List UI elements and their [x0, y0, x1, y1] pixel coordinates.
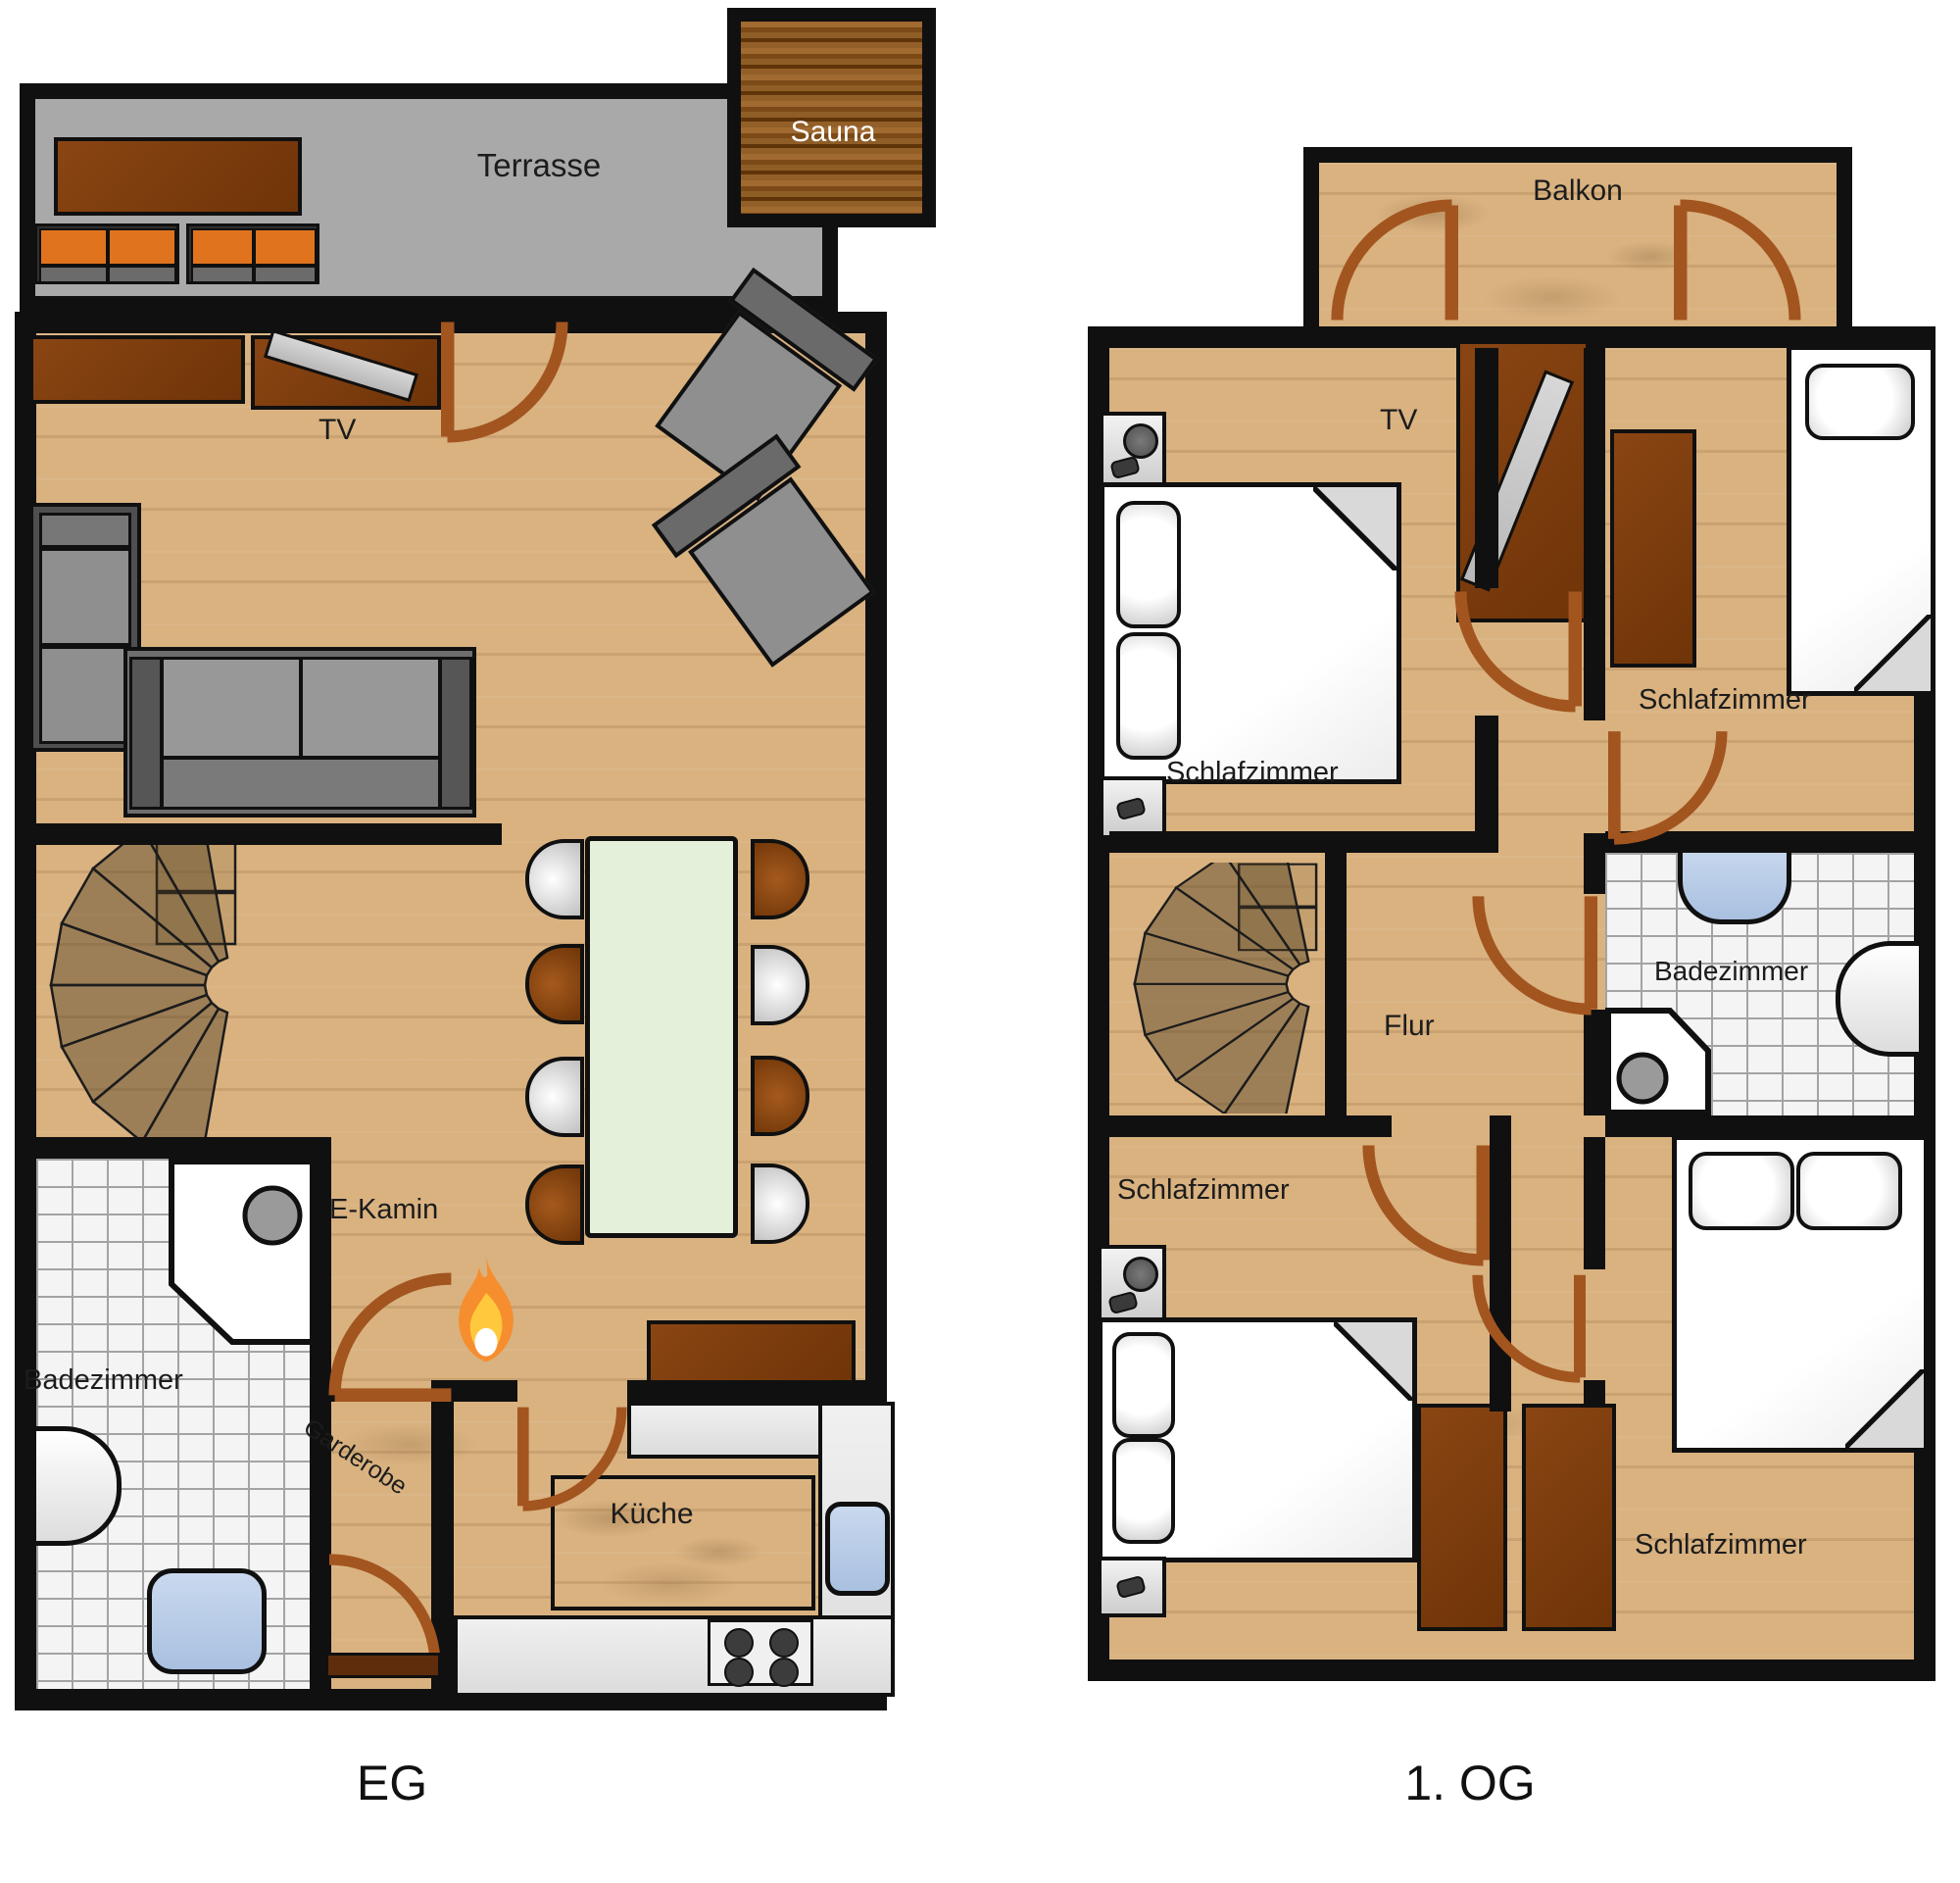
bench-base — [108, 266, 176, 283]
pillow — [1112, 1332, 1175, 1438]
door-swing-icon — [328, 1272, 458, 1402]
wall — [1475, 348, 1498, 588]
room-label-schlafzimmer-sw: Schlafzimmer — [1117, 1174, 1290, 1207]
room-label-tv-og: TV — [1380, 404, 1417, 437]
wall — [15, 1137, 331, 1159]
nightstand — [1100, 412, 1166, 488]
sofa-back — [161, 757, 441, 810]
terrace-bench — [186, 223, 319, 284]
wall — [627, 1380, 887, 1402]
wardrobe — [1522, 1404, 1616, 1631]
bench-cushion — [39, 228, 108, 266]
terrace-table — [54, 137, 302, 216]
bench-cushion — [254, 228, 317, 266]
wardrobe — [1417, 1404, 1507, 1631]
wall — [1109, 831, 1498, 853]
room-label-badezimmer-og: Badezimmer — [1654, 956, 1808, 987]
door-swing-icon — [1472, 890, 1597, 1016]
sofa-arm — [439, 657, 472, 810]
pillow — [1796, 1152, 1902, 1230]
burner — [769, 1628, 799, 1658]
terrace-bench — [34, 223, 179, 284]
burner — [724, 1658, 754, 1687]
toilet — [1678, 845, 1791, 924]
pillow — [1116, 501, 1181, 628]
blanket-fold — [1334, 1322, 1412, 1401]
floor-label-og: 1. OG — [1362, 1755, 1578, 1811]
shower — [169, 1159, 318, 1345]
spiral-stairs-icon — [31, 838, 242, 1142]
door-swing-icon — [517, 1402, 627, 1511]
blanket-fold — [1845, 1369, 1924, 1448]
wall — [1584, 348, 1605, 720]
wall — [1584, 1380, 1605, 1406]
spiral-stairs-icon — [1115, 863, 1323, 1114]
room-label-balkon: Balkon — [1450, 174, 1705, 208]
knob — [1109, 456, 1141, 480]
burner — [724, 1628, 754, 1658]
wall — [454, 1380, 517, 1402]
nightstand — [1098, 1245, 1166, 1323]
wall — [1584, 1010, 1605, 1115]
armchair-seat — [39, 548, 131, 646]
armchair-back — [39, 513, 131, 548]
door-swing-icon — [1472, 1269, 1586, 1383]
wardrobe — [1610, 429, 1696, 668]
sofa-arm — [129, 657, 163, 810]
bench-base — [39, 266, 108, 283]
sofa-cushion — [300, 657, 441, 759]
kitchen-sink — [825, 1502, 890, 1596]
door-swing-icon — [1674, 199, 1801, 326]
bench-base — [254, 266, 317, 283]
pillow — [1112, 1438, 1175, 1544]
room-label-schlafzimmer-nw: Schlafzimmer — [1166, 757, 1339, 789]
knob — [1115, 797, 1147, 821]
pillow — [1689, 1152, 1794, 1230]
blanket-fold — [1854, 615, 1931, 691]
wall — [1584, 1137, 1605, 1269]
sofa — [123, 647, 476, 818]
toilet — [147, 1568, 267, 1674]
nightstand — [1100, 776, 1166, 839]
knob — [1107, 1291, 1139, 1315]
burner — [769, 1658, 799, 1687]
double-bed — [1672, 1135, 1929, 1453]
kitchen-counter — [627, 1402, 826, 1459]
double-bed — [1100, 482, 1401, 784]
lamp — [1123, 1257, 1158, 1292]
armchair-seat — [39, 646, 131, 744]
sofa-cushion — [161, 657, 302, 759]
sideboard — [647, 1320, 856, 1389]
room-label-sauna: Sauna — [745, 116, 921, 149]
bench-cushion — [108, 228, 176, 266]
floor-label-eg: EG — [294, 1755, 490, 1811]
room-label-schlafzimmer-ne: Schlafzimmer — [1639, 684, 1811, 717]
door-swing-icon — [1331, 199, 1458, 326]
nightstand — [1098, 1557, 1166, 1617]
lamp — [1123, 423, 1158, 459]
door-swing-icon — [441, 316, 568, 443]
wall — [36, 823, 502, 845]
wall — [1109, 1115, 1392, 1137]
bench-base — [191, 266, 254, 283]
room-label-schlafzimmer-se: Schlafzimmer — [1635, 1529, 1807, 1561]
room-label-flur: Flur — [1384, 1010, 1435, 1043]
pillow — [1116, 632, 1181, 760]
room-label-terrasse: Terrasse — [421, 147, 657, 184]
room-label-ekamin: E-Kamin — [329, 1194, 438, 1226]
wall — [1605, 1115, 1914, 1137]
door-swing-icon — [1362, 1139, 1490, 1266]
sideboard — [29, 335, 245, 404]
room-label-badezimmer-eg: Badezimmer — [24, 1364, 183, 1397]
wall — [1584, 833, 1605, 894]
door-swing-icon — [1454, 585, 1582, 713]
fire-icon — [441, 1253, 531, 1372]
room-label-tv-eg: TV — [318, 414, 356, 447]
kitchen-counter — [454, 1615, 895, 1697]
stove — [708, 1619, 813, 1686]
double-bed — [1098, 1317, 1417, 1562]
entrance-door-leaf — [325, 1653, 441, 1678]
knob — [1115, 1575, 1147, 1600]
bench-cushion — [191, 228, 254, 266]
wall — [1325, 853, 1347, 1115]
pillow — [1805, 364, 1915, 440]
room-label-kueche: Küche — [578, 1498, 725, 1531]
door-swing-icon — [1608, 725, 1728, 845]
single-bed — [1787, 345, 1935, 696]
shower — [1605, 1008, 1711, 1115]
floorplan-canvas: Terrasse Sauna Badezimmer TV — [0, 0, 1960, 1883]
blanket-fold — [1313, 487, 1396, 570]
dining-table — [585, 836, 738, 1238]
